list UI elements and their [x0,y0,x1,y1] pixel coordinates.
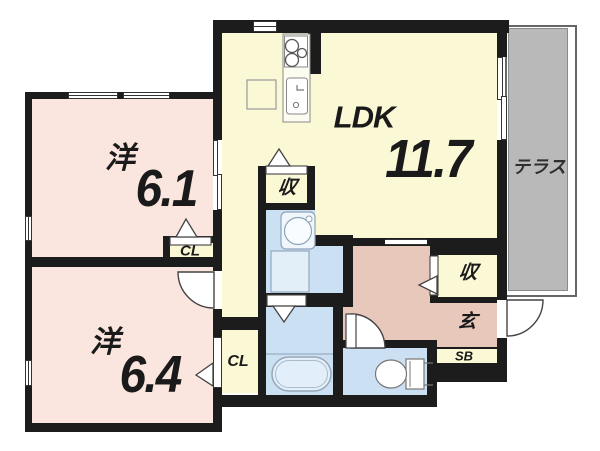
entrance-label: 玄 [456,313,478,332]
floor-plan: 洋 6.1 洋 6.4 LDK 11.7 テラス 収 収 玄 SB CL CL [0,0,600,451]
wall [213,92,222,140]
washroom-lower-fill [266,243,345,293]
terrace-sliding-window [497,57,503,100]
hall-fill [353,246,430,307]
wall [497,25,507,57]
wall [258,203,315,210]
window [25,216,32,241]
shoebox-label: SB [455,350,473,363]
bathroom-fill [266,307,333,395]
toilet-room-fill [343,348,427,396]
west1-sliding-door [217,174,222,210]
closet2-label: CL [227,354,248,370]
kitchen-wall-pillar [308,33,321,74]
wall [427,363,507,382]
wall [213,317,262,330]
closet1-label: CL [180,244,200,259]
wall [258,166,266,395]
room-west1-area: 6.1 [136,163,197,215]
room-ldk-label: LDK [334,102,395,133]
terrace-sliding-window [501,96,507,140]
room-west1-label: 洋 [105,144,135,174]
window [25,360,32,386]
wall [222,395,437,407]
wall [497,338,507,382]
ldk-hall-opening [385,239,427,245]
entrance-door-gap [497,300,507,338]
terrace-label: テラス [512,158,566,176]
wall [25,423,222,432]
west1-sliding-door [213,140,218,176]
room-ldk-area: 11.7 [385,132,471,186]
wall [213,388,222,432]
closet2-door-gap [213,337,222,388]
kitchen-window [253,21,277,32]
wall [430,246,438,303]
room-west2-area: 6.4 [120,349,181,401]
wall [497,140,507,300]
wall [213,20,222,92]
wall [430,297,504,303]
wall [213,210,222,236]
corridor-fill [222,238,258,317]
washroom-upper-fill [266,210,315,243]
window [123,92,170,99]
wall [335,340,430,348]
storage1-label: 収 [276,179,298,198]
entrance-door-swing [507,300,543,336]
storage2-label: 収 [457,264,479,283]
window [68,92,118,99]
room-west2-label: 洋 [90,328,120,358]
wall [430,246,504,255]
west2-door-gap [212,271,222,309]
